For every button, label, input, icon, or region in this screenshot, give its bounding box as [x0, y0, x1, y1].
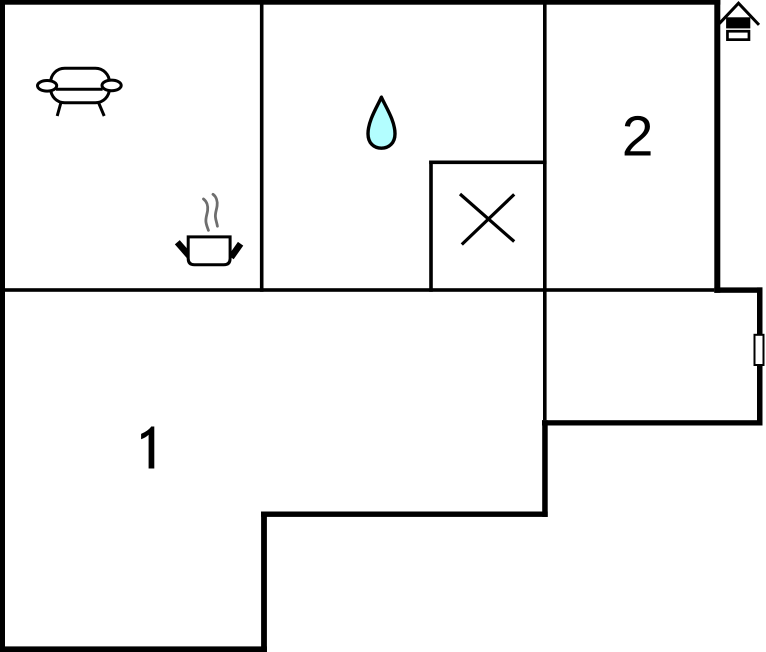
svg-text:2: 2 [622, 105, 654, 169]
